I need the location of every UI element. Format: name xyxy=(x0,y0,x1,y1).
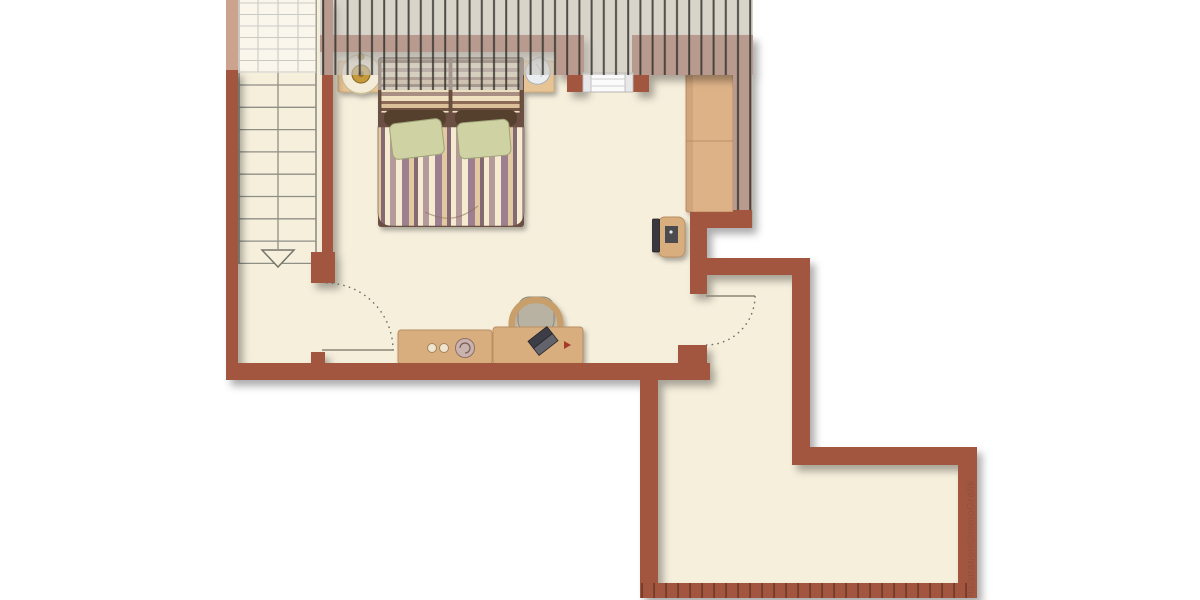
tv-screen xyxy=(653,219,660,252)
sideboard-knob xyxy=(428,344,437,353)
wall-left-outer xyxy=(226,70,238,380)
wall-hallway-north xyxy=(707,258,810,275)
wall-below-wardrobe xyxy=(690,212,751,228)
wall-door1-lower-stub xyxy=(311,352,325,363)
watermark-text: Illustration©ImmoGrafik xyxy=(965,480,977,597)
wall-door2-upper-stub xyxy=(690,228,707,294)
sideboard xyxy=(398,330,492,364)
pillow-left xyxy=(389,118,445,160)
desk xyxy=(493,327,583,364)
roof-veil-over-stairs xyxy=(238,0,316,73)
wall-door2-lower-stub xyxy=(678,345,707,377)
wall-bedroom-south xyxy=(226,363,710,380)
wall-door1-upper-stub xyxy=(311,252,335,283)
window xyxy=(583,73,633,92)
sideboard-knob xyxy=(440,344,449,353)
tv-on-stand xyxy=(653,217,686,257)
wall-window-jamb-left xyxy=(567,74,584,92)
floor-plan-page: Illustration©ImmoGrafik xyxy=(0,0,1200,600)
pillow-right xyxy=(457,119,512,159)
wardrobe xyxy=(686,70,733,212)
wall-lower-left xyxy=(640,363,658,598)
wall-step-horizontal xyxy=(792,447,977,465)
wall-hallway-east xyxy=(792,275,810,465)
floor-plan-svg: Illustration©ImmoGrafik xyxy=(0,0,1200,600)
wall-window-jamb-right xyxy=(633,74,649,92)
tv-receiver xyxy=(665,226,678,243)
wall-south-tick-marks xyxy=(640,583,977,598)
wall-left-upper-faded xyxy=(226,0,238,73)
sideboard-bowl xyxy=(456,339,475,358)
